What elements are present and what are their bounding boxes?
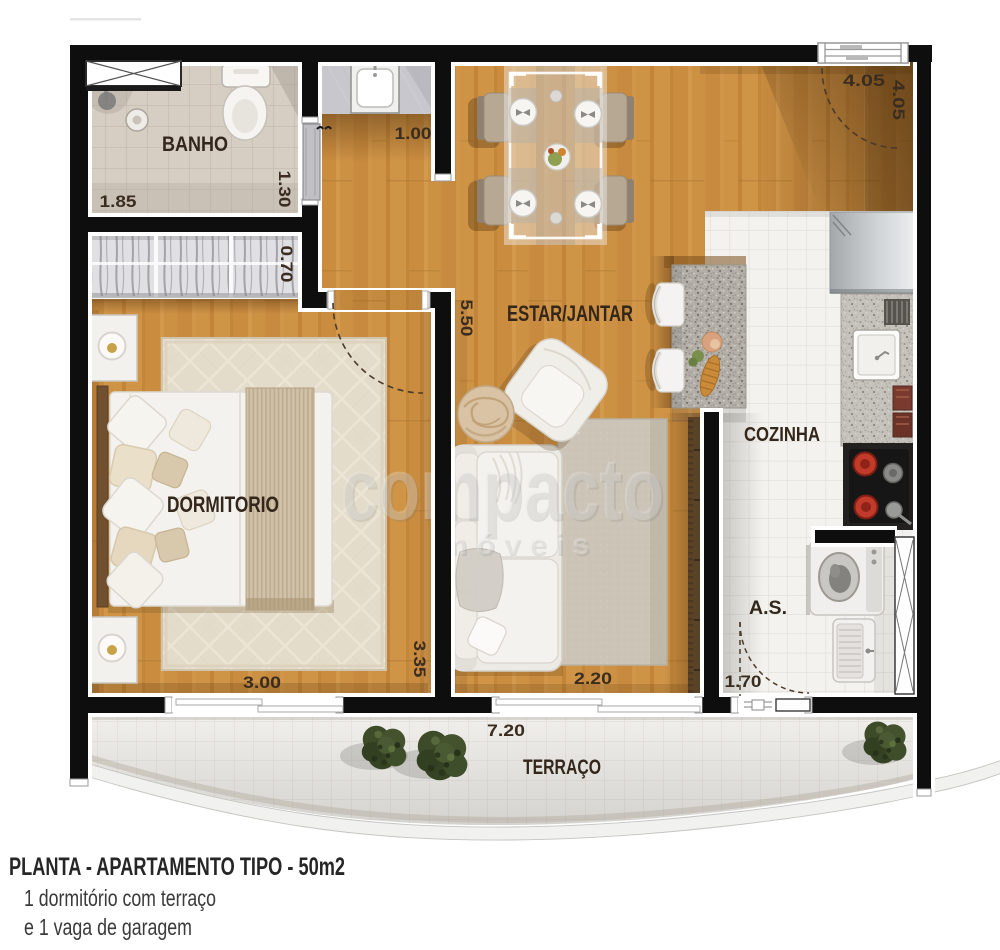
svg-text:1.70: 1.70 bbox=[725, 672, 762, 691]
svg-text:A.S.: A.S. bbox=[749, 598, 787, 619]
svg-text:1.00: 1.00 bbox=[395, 124, 432, 143]
svg-text:5.50: 5.50 bbox=[457, 300, 476, 337]
svg-text:3.35: 3.35 bbox=[410, 641, 429, 678]
svg-text:4.05: 4.05 bbox=[889, 80, 908, 120]
svg-text:1 dormitório com terraço: 1 dormitório com terraço bbox=[24, 885, 216, 911]
svg-text:DORMITORIO: DORMITORIO bbox=[167, 492, 279, 517]
svg-text:BANHO: BANHO bbox=[162, 133, 228, 156]
svg-text:4.05: 4.05 bbox=[843, 71, 885, 90]
svg-text:2.20: 2.20 bbox=[574, 669, 612, 688]
svg-text:PLANTA - APARTAMENTO TIPO - 50: PLANTA - APARTAMENTO TIPO - 50m2 bbox=[9, 853, 345, 881]
svg-text:3.00: 3.00 bbox=[243, 673, 281, 692]
svg-text:m ó v e i s: m ó v e i s bbox=[439, 528, 589, 561]
svg-text:compacto: compacto bbox=[340, 439, 664, 538]
svg-text:1.30: 1.30 bbox=[275, 171, 294, 208]
svg-text:1.85: 1.85 bbox=[100, 192, 137, 211]
svg-text:7.20: 7.20 bbox=[487, 721, 525, 740]
svg-text:TERRAÇO: TERRAÇO bbox=[523, 756, 601, 779]
svg-text:e 1 vaga de garagem: e 1 vaga de garagem bbox=[24, 914, 192, 940]
svg-text:0.70: 0.70 bbox=[277, 246, 296, 283]
svg-text:COZINHA: COZINHA bbox=[744, 424, 820, 446]
svg-text:ESTAR/JANTAR: ESTAR/JANTAR bbox=[507, 301, 633, 326]
